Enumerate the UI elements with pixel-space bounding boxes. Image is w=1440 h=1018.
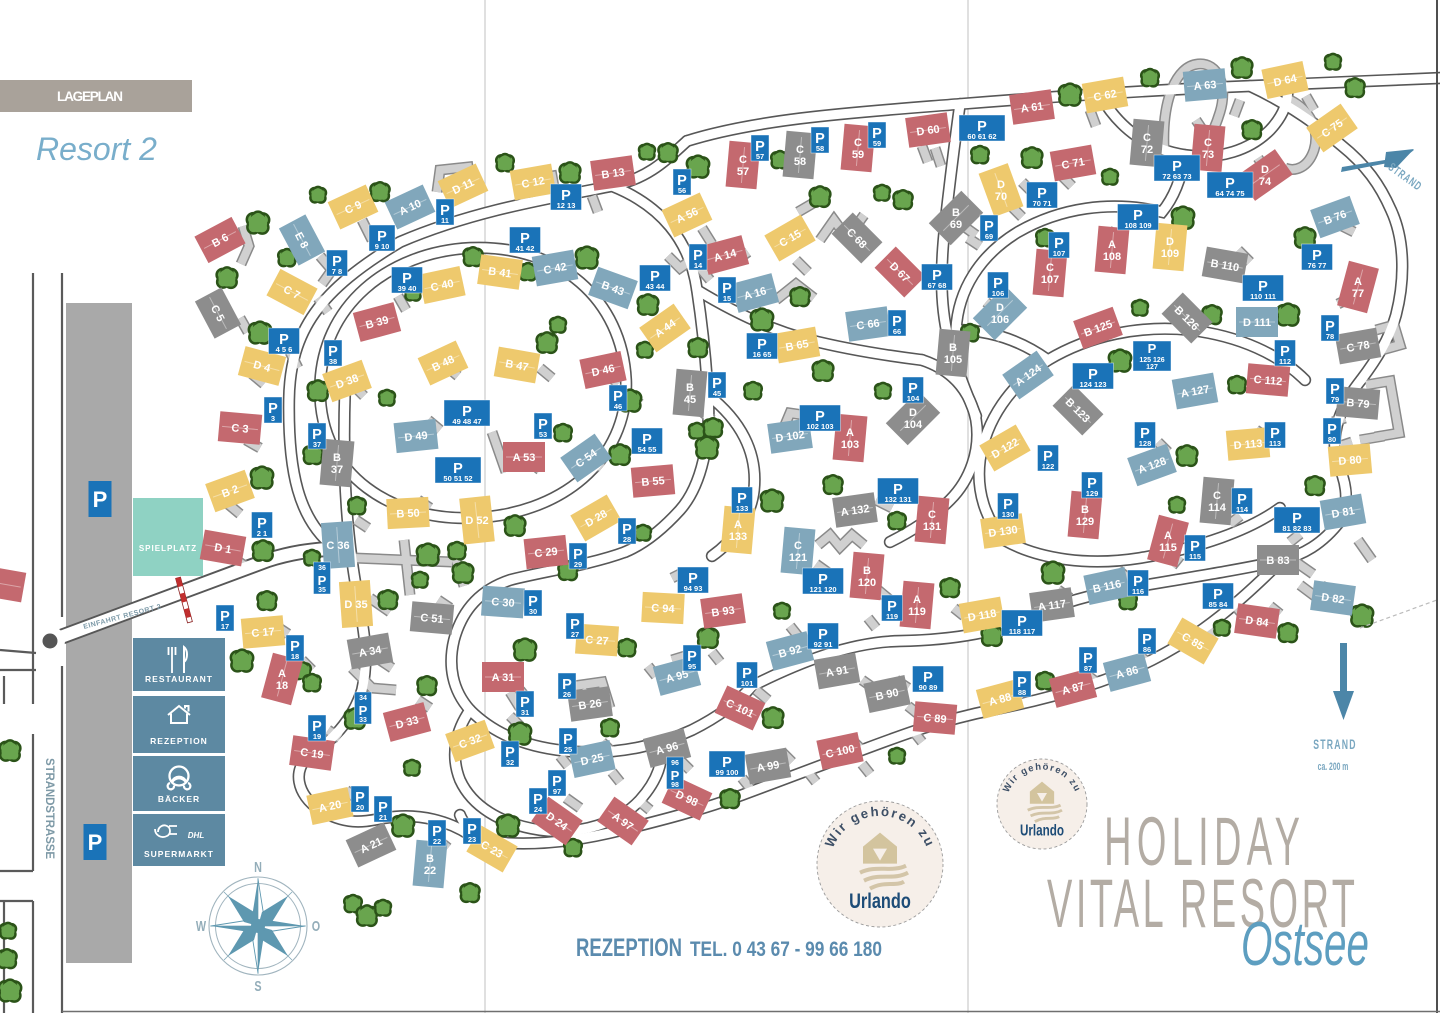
svg-text:24: 24 [534,805,543,814]
svg-text:21: 21 [379,813,387,822]
svg-text:C 27: C 27 [585,634,609,648]
svg-text:98: 98 [671,782,679,789]
svg-text:99 100: 99 100 [716,768,739,777]
svg-text:P: P [93,487,108,512]
svg-text:97: 97 [553,787,561,796]
svg-text:TEL. 0 43 67 - 99 66 180: TEL. 0 43 67 - 99 66 180 [690,938,882,961]
svg-text:REZEPTION: REZEPTION [576,934,682,962]
svg-text:33: 33 [359,717,367,724]
svg-text:32: 32 [506,758,514,767]
svg-text:Ostsee: Ostsee [1241,909,1369,979]
svg-text:DHL: DHL [188,831,205,840]
svg-text:SUPERMARKT: SUPERMARKT [144,849,214,859]
svg-text:108 109: 108 109 [1124,221,1151,230]
svg-text:B 50: B 50 [396,507,420,520]
svg-text:RESTAURANT: RESTAURANT [145,674,213,684]
svg-text:79: 79 [1331,395,1339,404]
svg-text:4 5 6: 4 5 6 [276,345,293,354]
svg-text:81 82 83: 81 82 83 [1282,524,1311,533]
svg-text:27: 27 [571,630,579,639]
svg-text:C 112: C 112 [1253,374,1283,388]
svg-text:LAGEPLAN: LAGEPLAN [57,89,125,104]
svg-text:9 10: 9 10 [375,242,390,251]
svg-text:B 83: B 83 [1266,555,1289,567]
svg-text:102 103: 102 103 [806,422,833,431]
svg-text:Urlando: Urlando [1020,823,1064,840]
svg-text:16 65: 16 65 [753,350,772,359]
svg-text:57: 57 [756,152,764,161]
svg-text:26: 26 [563,690,571,699]
svg-text:118 117: 118 117 [1009,627,1035,636]
svg-text:B 55: B 55 [641,475,665,489]
svg-text:D 80: D 80 [1338,454,1362,468]
svg-text:C 29: C 29 [534,546,558,560]
svg-text:28: 28 [623,535,631,544]
svg-text:BÄCKER: BÄCKER [158,794,200,804]
svg-text:96: 96 [671,760,679,767]
svg-text:D 49: D 49 [404,430,428,444]
svg-text:46: 46 [614,402,622,411]
svg-text:90 89: 90 89 [919,683,938,692]
svg-text:72 63 73: 72 63 73 [1162,172,1191,181]
svg-text:P: P [318,573,327,588]
svg-text:C 17: C 17 [251,626,275,640]
svg-text:127: 127 [1146,364,1158,371]
svg-text:2 1: 2 1 [257,529,267,538]
svg-text:D 111: D 111 [1243,317,1271,329]
svg-text:115: 115 [1189,552,1201,561]
svg-text:D 52: D 52 [465,515,488,527]
svg-text:23: 23 [468,835,476,844]
svg-text:17: 17 [221,622,229,631]
svg-text:95: 95 [688,662,696,671]
svg-text:C 3: C 3 [231,422,249,435]
svg-text:58: 58 [816,144,824,153]
svg-text:94 93: 94 93 [684,584,703,593]
svg-text:59: 59 [873,139,881,148]
svg-text:129: 129 [1086,489,1099,498]
svg-text:36: 36 [318,565,326,572]
svg-text:114: 114 [1236,505,1249,514]
svg-text:12 13: 12 13 [557,201,576,210]
svg-text:A 53: A 53 [513,452,536,464]
svg-text:B 79: B 79 [1346,397,1370,411]
svg-text:25: 25 [564,745,572,754]
svg-text:O: O [312,917,320,934]
svg-text:78: 78 [1326,332,1334,341]
svg-text:69: 69 [985,232,993,241]
svg-text:64 74 75: 64 74 75 [1215,189,1244,198]
svg-text:38: 38 [329,357,337,366]
svg-text:19: 19 [313,732,321,741]
svg-text:101: 101 [741,679,754,688]
svg-text:STRAND: STRAND [1313,737,1357,753]
svg-text:107: 107 [1053,249,1066,258]
svg-text:53: 53 [539,430,547,439]
svg-text:76 77: 76 77 [1308,261,1327,270]
svg-text:C 51: C 51 [420,612,444,626]
svg-text:REZEPTION: REZEPTION [150,736,208,746]
svg-text:35: 35 [318,587,326,594]
svg-text:88: 88 [1018,688,1026,697]
svg-text:STRANDSTRASSE: STRANDSTRASSE [43,758,55,860]
svg-text:A 31: A 31 [492,672,515,684]
svg-text:85 84: 85 84 [1209,600,1229,609]
svg-text:P: P [1148,341,1157,356]
svg-text:3: 3 [271,414,275,423]
svg-text:70 71: 70 71 [1033,199,1052,208]
svg-text:C 30: C 30 [491,596,515,610]
svg-text:104: 104 [907,394,920,403]
svg-text:C 94: C 94 [651,602,676,615]
svg-text:49 48 47: 49 48 47 [452,417,481,426]
svg-text:67 68: 67 68 [928,281,947,290]
svg-text:C 36: C 36 [326,540,349,552]
svg-text:133: 133 [736,504,749,513]
svg-text:56: 56 [678,186,686,195]
svg-text:14: 14 [694,261,703,270]
svg-text:66: 66 [893,327,901,336]
svg-text:116: 116 [1132,587,1144,596]
svg-text:45: 45 [713,389,721,398]
svg-text:P: P [671,768,680,783]
svg-text:Resort 2: Resort 2 [36,131,157,167]
svg-text:W: W [196,917,207,934]
svg-text:D 35: D 35 [344,599,367,611]
svg-text:106: 106 [992,289,1005,298]
svg-text:119: 119 [886,612,898,621]
svg-text:132 131: 132 131 [884,495,911,504]
svg-text:30: 30 [529,607,537,616]
svg-text:34: 34 [359,695,367,702]
svg-text:29: 29 [574,560,582,569]
svg-text:11: 11 [441,216,449,225]
svg-text:86: 86 [1143,645,1151,654]
svg-text:112: 112 [1279,357,1291,366]
svg-text:41 42: 41 42 [516,244,535,253]
svg-text:113: 113 [1269,439,1281,448]
svg-text:N: N [254,858,262,875]
svg-text:S: S [254,977,261,994]
svg-text:87: 87 [1084,664,1092,673]
svg-text:D 113: D 113 [1233,438,1263,452]
svg-text:15: 15 [723,294,731,303]
svg-text:7 8: 7 8 [332,267,342,276]
svg-text:43 44: 43 44 [646,282,666,291]
svg-text:125 126: 125 126 [1139,357,1164,364]
svg-text:60 61 62: 60 61 62 [967,132,996,141]
svg-text:124 123: 124 123 [1079,380,1106,389]
svg-text:37: 37 [313,440,321,449]
svg-text:130: 130 [1002,510,1015,519]
svg-text:A 63: A 63 [1193,79,1217,93]
svg-text:P: P [359,703,368,718]
svg-text:39 40: 39 40 [398,284,417,293]
svg-text:121 120: 121 120 [809,585,836,594]
svg-text:20: 20 [356,803,364,812]
svg-text:Urlando: Urlando [849,889,911,913]
svg-text:54 55: 54 55 [638,445,657,454]
svg-text:110 111: 110 111 [1250,292,1276,301]
svg-text:122: 122 [1042,462,1055,471]
svg-text:ca. 200 m: ca. 200 m [1318,760,1349,772]
svg-text:C 89: C 89 [923,712,947,726]
svg-text:128: 128 [1139,439,1152,448]
svg-text:50 51 52: 50 51 52 [443,474,472,483]
svg-text:22: 22 [433,837,441,846]
svg-text:SPIELPLATZ: SPIELPLATZ [139,544,197,553]
svg-text:P: P [88,830,103,855]
svg-text:31: 31 [521,708,529,717]
svg-text:92 91: 92 91 [814,640,833,649]
svg-text:18: 18 [291,652,299,661]
svg-text:80: 80 [1328,435,1336,444]
